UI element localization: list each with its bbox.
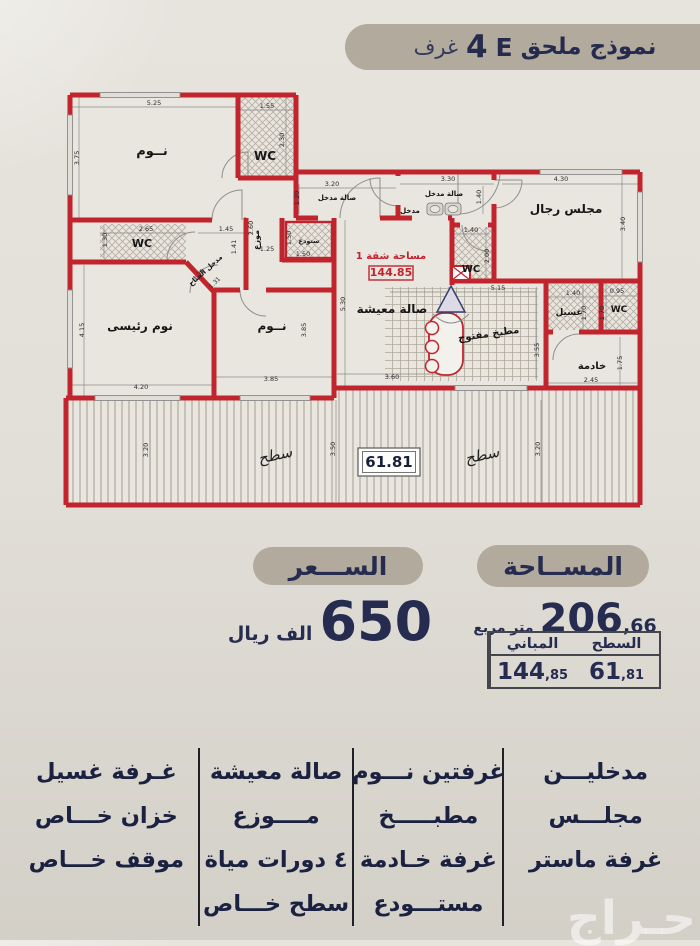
feature-item: سطح خـــاص xyxy=(203,882,349,926)
area-table-col-surface: السطح xyxy=(574,633,659,656)
dimension-label: 3.60 xyxy=(385,373,399,381)
feature-item: خزان خـــاص xyxy=(35,794,178,838)
room-label: خادمة xyxy=(578,361,606,372)
dimension-label: 0.95 xyxy=(610,287,624,295)
feature-item: غـرفة غسيل xyxy=(36,750,177,794)
price-value: 650 الف ريال xyxy=(225,593,435,653)
feature-column-4: غـرفة غسيلخزان خـــاصموقف خـــاص xyxy=(15,748,198,926)
dimension-label: 2.65 xyxy=(139,225,153,233)
watermark: حـراج xyxy=(567,891,696,946)
dimension-label: 2.30 xyxy=(278,133,286,147)
dimension-label: 1.45 xyxy=(219,225,233,233)
dimension-label: 5.25 xyxy=(147,99,161,107)
room-label: ستودع xyxy=(299,237,320,245)
dimension-label: 3.75 xyxy=(73,151,81,165)
dimension-label: 5.15 xyxy=(491,284,505,292)
dimension-label: 1.50 xyxy=(296,250,310,258)
feature-item: مدخليـــن xyxy=(543,750,648,794)
room-label: WC xyxy=(254,149,276,163)
dimension-label: 1.30 xyxy=(101,233,109,247)
room-label: WC xyxy=(132,237,152,250)
room-label: 144.85 xyxy=(370,266,412,279)
feature-item: مــــوزع xyxy=(233,794,320,838)
dimension-label: 2.45 xyxy=(584,376,598,384)
feature-item: موقف خـــاص xyxy=(29,838,184,882)
dimension-label: 1.70 xyxy=(580,306,588,320)
dimension-label: 1.50 xyxy=(285,231,293,245)
dimension-label: 2.60 xyxy=(247,221,255,235)
area-building-value: 144,85 xyxy=(489,656,574,687)
feature-item: صالة معيشة xyxy=(210,750,342,794)
dimension-label: 3.85 xyxy=(264,375,278,383)
room-label: صالة مدخل xyxy=(318,194,357,202)
dimension-label: 3.50 xyxy=(329,442,337,456)
dimension-label: 3.20 xyxy=(325,180,339,188)
area-surface-value: 61,81 xyxy=(574,656,659,687)
dimension-label: 2.00 xyxy=(483,249,491,263)
dimension-label: 1.70 xyxy=(598,306,606,320)
room-label: صالة معيشة xyxy=(357,302,428,316)
price-header: الســـعر xyxy=(253,547,423,585)
room-label: غسيل xyxy=(555,308,582,318)
dimension-label: 1.40 xyxy=(475,190,483,204)
flyer-page: { "colors":{"wall_red":"#c2242e","navy":… xyxy=(0,0,700,940)
price-amount: 650 xyxy=(319,593,432,651)
dimension-label: 1.75 xyxy=(616,356,624,370)
feature-column-3: صالة معيشةمــــوزع٤ دورات مياةسطح خـــاص xyxy=(198,748,353,926)
room-label: مساحة شقة 1 xyxy=(356,251,426,262)
dimension-label: 3.20 xyxy=(534,442,542,456)
dimension-label: 1.40 xyxy=(566,289,580,297)
dimension-label: 1.41 xyxy=(230,240,238,254)
dimension-label: 3.40 xyxy=(619,217,627,231)
dimension-label: 3.55 xyxy=(533,343,541,357)
room-label: مجلس رجال xyxy=(530,202,603,216)
dimension-label: 1.55 xyxy=(260,102,274,110)
room-label: نــوم xyxy=(136,144,167,159)
price-unit: الف ريال xyxy=(228,623,313,645)
feature-item: غرفة خـادمة xyxy=(360,838,497,882)
dimension-label: 4.20 xyxy=(134,383,148,391)
feature-item: مطبـــــخ xyxy=(379,794,479,838)
area-table: السطح المباني 61,81 144,85 xyxy=(487,631,661,689)
feature-item: مستـــودع xyxy=(373,882,483,926)
room-label: مدخل xyxy=(400,207,420,215)
dimension-label: 1.25 xyxy=(260,245,274,253)
feature-column-2: غرفتين نـــوممطبـــــخغرفة خـادمةمستـــو… xyxy=(352,748,502,926)
room-label: نوم رئيسى xyxy=(107,319,173,334)
room-label: نــوم xyxy=(257,319,286,334)
dimension-label: 5.30 xyxy=(339,297,347,311)
dimension-label: 3.20 xyxy=(142,443,150,457)
dimension-label: 4.15 xyxy=(78,323,86,337)
dimension-label: 3.30 xyxy=(441,175,455,183)
dimension-label: 4.30 xyxy=(554,175,568,183)
dimension-label: 1.40 xyxy=(464,226,478,234)
room-label: WC xyxy=(462,264,480,275)
area-header: المســاحة xyxy=(477,545,649,587)
dimension-label: 3.85 xyxy=(300,323,308,337)
feature-item: غرفة ماستر xyxy=(529,838,662,882)
room-label: صالة مدخل xyxy=(425,190,464,198)
feature-item: مجلـــس xyxy=(549,794,643,838)
room-label: WC xyxy=(611,305,628,315)
area-table-col-building: المباني xyxy=(489,633,574,656)
feature-item: غرفتين نـــوم xyxy=(352,750,505,794)
room-label: 61.81 xyxy=(365,453,412,471)
feature-item: ٤ دورات مياة xyxy=(205,838,348,882)
dimension-label: 1.20 xyxy=(293,191,301,205)
